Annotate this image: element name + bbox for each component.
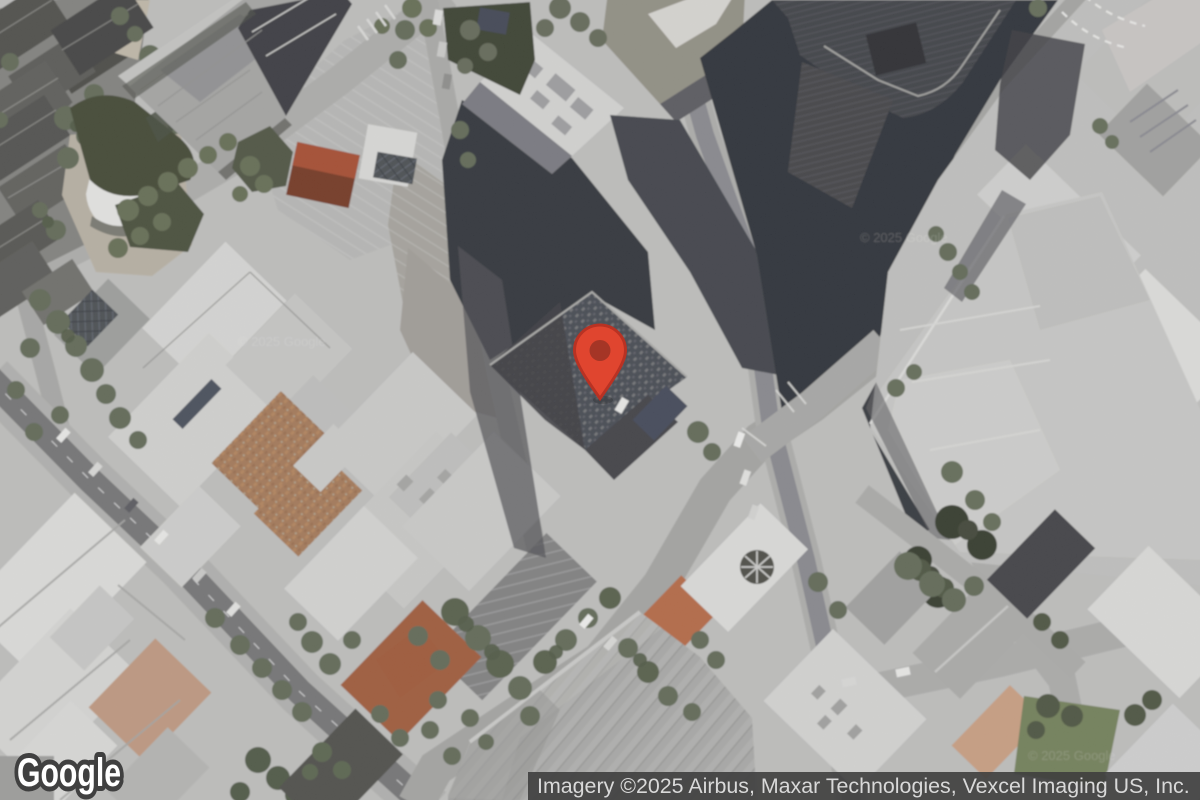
svg-text:Imagery ©2025 Airbus, Maxar Te: Imagery ©2025 Airbus, Maxar Technologies… (537, 774, 1190, 798)
svg-text:Google: Google (17, 751, 121, 795)
